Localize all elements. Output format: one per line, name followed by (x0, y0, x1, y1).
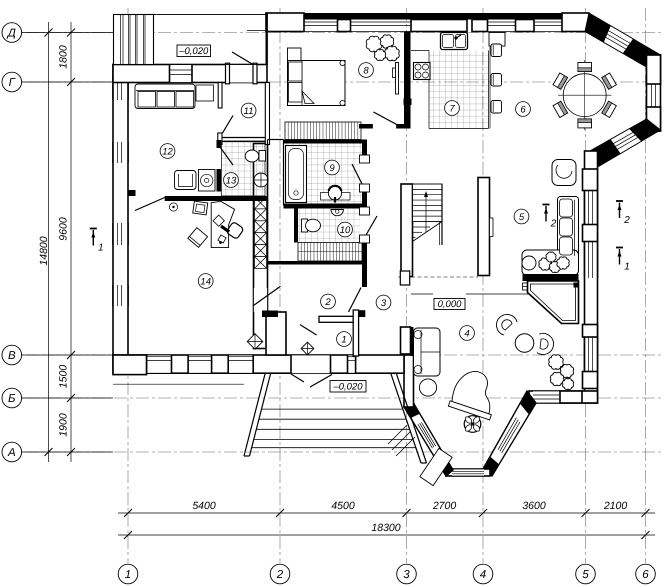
svg-text:3: 3 (381, 298, 387, 309)
svg-text:18300: 18300 (371, 522, 400, 534)
svg-text:5400: 5400 (192, 500, 216, 512)
svg-text:12: 12 (162, 146, 173, 157)
svg-text:9: 9 (329, 163, 335, 174)
svg-text:10: 10 (340, 225, 351, 236)
svg-text:0,000: 0,000 (438, 299, 462, 310)
svg-text:2: 2 (276, 569, 284, 581)
svg-text:1900: 1900 (58, 413, 70, 437)
svg-text:8: 8 (363, 65, 369, 76)
svg-text:2: 2 (623, 215, 630, 226)
svg-text:–0,020: –0,020 (332, 382, 363, 393)
svg-text:А: А (7, 447, 16, 459)
svg-text:14: 14 (200, 276, 211, 287)
svg-text:2700: 2700 (432, 500, 457, 512)
svg-text:9600: 9600 (58, 217, 70, 241)
svg-text:1: 1 (98, 243, 104, 254)
svg-text:1800: 1800 (58, 45, 70, 69)
svg-text:6: 6 (520, 104, 526, 115)
svg-text:4500: 4500 (331, 500, 355, 512)
svg-text:3: 3 (403, 569, 410, 581)
svg-text:В: В (8, 350, 16, 362)
svg-text:13: 13 (226, 175, 237, 186)
svg-text:3600: 3600 (522, 500, 546, 512)
svg-text:1: 1 (341, 334, 346, 345)
svg-text:Г: Г (9, 77, 16, 89)
svg-text:5: 5 (519, 212, 525, 223)
svg-text:14800: 14800 (38, 236, 50, 265)
svg-text:1: 1 (125, 569, 131, 581)
svg-text:4: 4 (480, 569, 486, 581)
svg-text:2100: 2100 (603, 500, 628, 512)
svg-text:7: 7 (449, 103, 455, 114)
svg-text:1: 1 (624, 262, 630, 273)
svg-text:6: 6 (642, 569, 649, 581)
svg-text:4: 4 (464, 328, 469, 339)
svg-text:–0,020: –0,020 (178, 46, 209, 57)
svg-text:2: 2 (550, 219, 557, 230)
svg-text:2: 2 (324, 297, 331, 308)
svg-text:5: 5 (582, 569, 589, 581)
svg-text:11: 11 (244, 106, 254, 117)
svg-text:1500: 1500 (58, 365, 70, 389)
svg-text:Д: Д (6, 28, 16, 40)
svg-text:Б: Б (8, 393, 16, 405)
